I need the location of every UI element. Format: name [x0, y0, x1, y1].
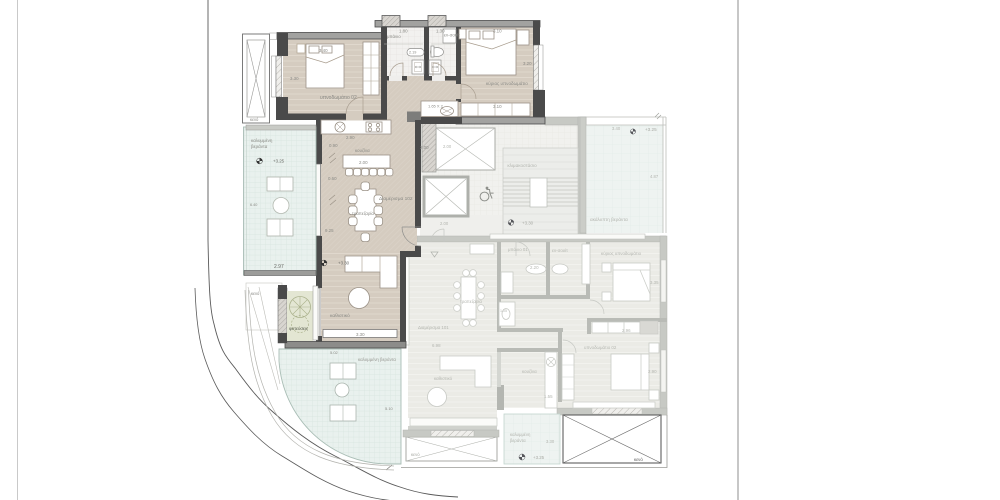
svg-text:καθιστικό: καθιστικό — [330, 312, 350, 319]
svg-text:καλυμμένη: καλυμμένη — [510, 432, 531, 437]
svg-text:μπάνιο 01: μπάνιο 01 — [508, 247, 528, 252]
svg-text:2.00: 2.00 — [359, 160, 368, 165]
svg-text:τραπεζαρία: τραπεζαρία — [460, 299, 482, 304]
svg-text:Διαμέρισμα 102: Διαμέρισμα 102 — [379, 195, 413, 202]
svg-text:2.00: 2.00 — [443, 144, 452, 149]
svg-text:0.90: 0.90 — [329, 143, 338, 148]
svg-text:3.10: 3.10 — [493, 29, 502, 34]
svg-text:2.00: 2.00 — [440, 221, 449, 226]
svg-text:Διαμέρισμα 101: Διαμέρισμα 101 — [418, 325, 449, 330]
svg-text:6.98: 6.98 — [432, 343, 441, 348]
svg-text:κενό: κενό — [411, 452, 420, 457]
svg-text:6.40: 6.40 — [250, 203, 257, 207]
svg-text:5.10: 5.10 — [385, 406, 394, 411]
svg-text:κύριος υπνοδωμάτιο: κύριος υπνοδωμάτιο — [601, 251, 642, 256]
svg-text:1.30: 1.30 — [436, 29, 445, 34]
svg-text:2.00: 2.00 — [420, 145, 429, 150]
svg-text:3.10: 3.10 — [493, 104, 502, 109]
svg-text:3.40: 3.40 — [319, 48, 328, 53]
svg-text:καλυμμένη: καλυμμένη — [251, 137, 273, 143]
svg-text:3.30: 3.30 — [546, 439, 555, 444]
svg-text:1.65 Χ 2: 1.65 Χ 2 — [428, 104, 444, 109]
svg-text:εν-σουίτ: εν-σουίτ — [552, 248, 568, 253]
svg-text:ακάλυπτη βεράντα: ακάλυπτη βεράντα — [590, 216, 628, 222]
svg-text:κενό: κενό — [250, 117, 259, 122]
svg-text:εν-σουίτ: εν-σουίτ — [444, 33, 460, 38]
svg-text:υπνοδωμάτιο 02: υπνοδωμάτιο 02 — [584, 345, 617, 350]
svg-text:2.90: 2.90 — [346, 135, 355, 140]
svg-text:5.02: 5.02 — [330, 350, 339, 355]
svg-text:+3.30: +3.30 — [522, 221, 534, 226]
svg-text:3.30: 3.30 — [290, 76, 299, 81]
svg-text:3.40: 3.40 — [612, 126, 621, 131]
svg-text:2.97: 2.97 — [274, 264, 284, 270]
svg-text:κλιμακοστάσιο: κλιμακοστάσιο — [507, 162, 537, 168]
svg-text:κουζίνα: κουζίνα — [355, 148, 370, 153]
svg-text:4.87: 4.87 — [650, 174, 659, 179]
svg-text:2.96: 2.96 — [622, 328, 631, 333]
svg-text:3.35: 3.35 — [650, 280, 659, 285]
svg-text:+3.25: +3.25 — [533, 455, 545, 460]
svg-text:βεράντα: βεράντα — [251, 143, 268, 149]
svg-text:καλυμμένη βεράντα: καλυμμένη βεράντα — [358, 357, 396, 362]
svg-text:0.60: 0.60 — [328, 176, 337, 181]
svg-text:3.30: 3.30 — [356, 332, 365, 337]
svg-text:κύριος υπνοδωμάτιο: κύριος υπνοδωμάτιο — [486, 80, 528, 86]
svg-text:1.55: 1.55 — [544, 394, 553, 399]
svg-text:3.20: 3.20 — [523, 61, 532, 66]
svg-text:μπάνιο: μπάνιο — [387, 34, 401, 39]
svg-text:καθιστικό: καθιστικό — [434, 376, 453, 381]
svg-text:1.80: 1.80 — [399, 29, 408, 34]
svg-text:+3.25: +3.25 — [645, 127, 657, 132]
svg-text:2.19: 2.19 — [409, 51, 416, 55]
svg-text:κουζίνα: κουζίνα — [522, 369, 537, 374]
svg-text:+3.25: +3.25 — [273, 159, 285, 164]
svg-text:1.05: 1.05 — [500, 309, 507, 313]
svg-text:κενό: κενό — [251, 291, 260, 296]
svg-text:κενό: κενό — [634, 457, 643, 462]
svg-text:φυτεύσεις: φυτεύσεις — [289, 326, 308, 331]
svg-text:2.90: 2.90 — [648, 369, 657, 374]
svg-text:+3.30: +3.30 — [338, 261, 350, 266]
svg-text:9.25: 9.25 — [325, 228, 334, 233]
svg-text:βεράντα: βεράντα — [510, 438, 526, 443]
svg-text:2.20: 2.20 — [530, 265, 539, 270]
svg-text:υπνοδωμάτιο 02: υπνοδωμάτιο 02 — [320, 94, 357, 101]
svg-text:τραπεζαρία: τραπεζαρία — [352, 211, 374, 216]
